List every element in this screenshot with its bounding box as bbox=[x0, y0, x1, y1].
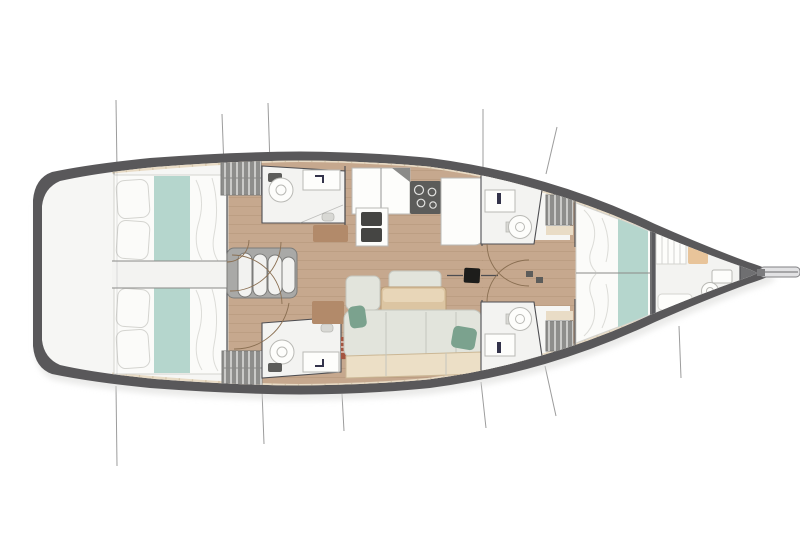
sink-basin-icon bbox=[361, 228, 382, 242]
hanging-locker-forward-starboard bbox=[546, 311, 573, 351]
mast-icon bbox=[464, 268, 481, 284]
dinette-chair bbox=[346, 276, 380, 310]
faucet-icon bbox=[497, 193, 501, 204]
sink-icon bbox=[303, 352, 339, 372]
shower-drain-icon bbox=[321, 324, 333, 332]
galley-counter-forward bbox=[441, 178, 483, 245]
aft-head-port bbox=[262, 166, 345, 223]
stern-corridor bbox=[112, 261, 228, 288]
shower-drain-icon bbox=[322, 213, 334, 221]
sink-basin-icon bbox=[361, 212, 382, 226]
hanging-locker-aft-port bbox=[221, 161, 261, 195]
hanging-locker-aft-starboard bbox=[222, 351, 262, 386]
floor-mat bbox=[313, 225, 348, 242]
hanging-locker-forward-port bbox=[546, 195, 573, 235]
yacht-floorplan-canvas bbox=[0, 0, 800, 533]
faucet-icon bbox=[497, 342, 501, 353]
bed-runner-teal bbox=[154, 176, 190, 262]
settee-base bbox=[346, 352, 481, 378]
aft-cabin-starboard-bed bbox=[114, 286, 228, 374]
bed-runner-teal bbox=[154, 287, 190, 373]
toilet-cistern bbox=[268, 363, 282, 372]
floor-mat bbox=[312, 301, 344, 324]
aft-head-starboard bbox=[262, 317, 341, 378]
settee-cushion-teal bbox=[348, 305, 368, 329]
bowsprit bbox=[757, 267, 800, 277]
sink-icon bbox=[303, 170, 340, 190]
aft-cabin-port-bed bbox=[114, 175, 228, 263]
settee-cushion-teal bbox=[450, 325, 477, 351]
deck-plan-svg bbox=[0, 0, 800, 533]
stove-icon bbox=[410, 181, 441, 214]
